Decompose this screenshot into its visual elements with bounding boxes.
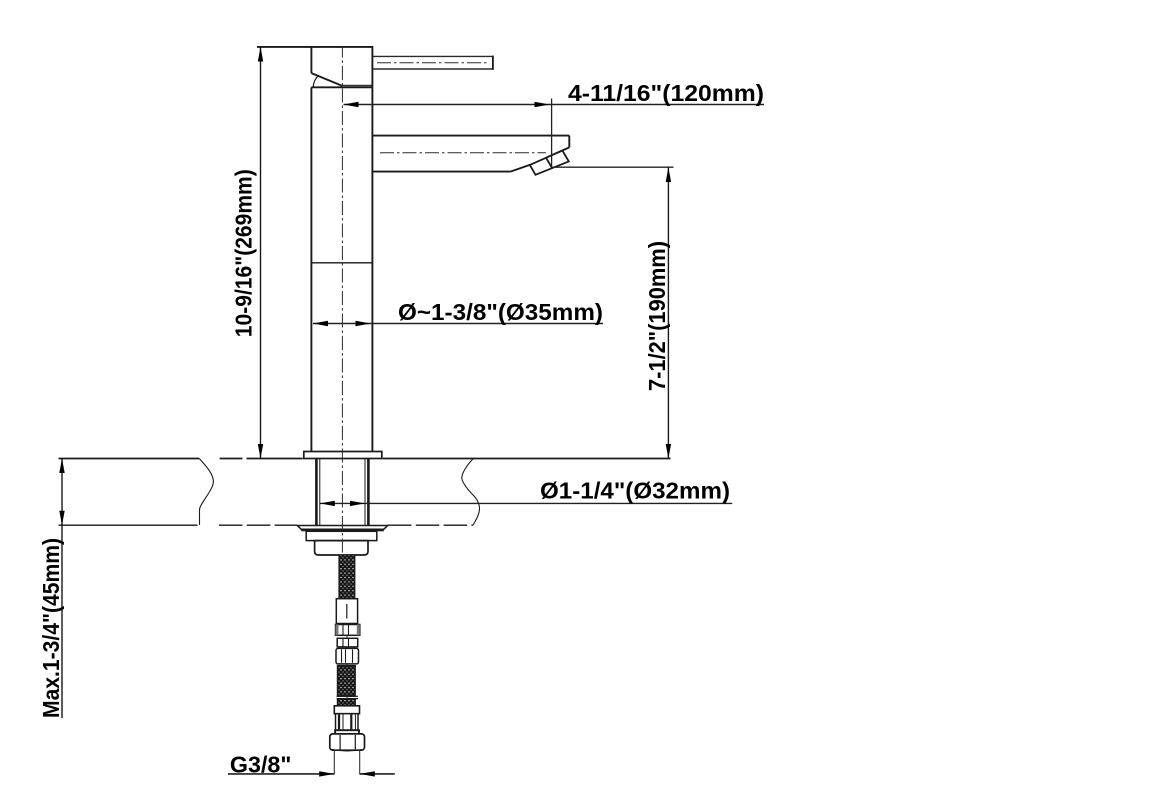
- svg-text:4-11/16"(120mm): 4-11/16"(120mm): [568, 80, 764, 106]
- svg-text:Ø~1-3/8"(Ø35mm): Ø~1-3/8"(Ø35mm): [398, 299, 603, 325]
- svg-text:Ø1-1/4"(Ø32mm): Ø1-1/4"(Ø32mm): [540, 478, 730, 504]
- svg-text:7-1/2"(190mm): 7-1/2"(190mm): [644, 241, 670, 391]
- svg-text:10-9/16"(269mm): 10-9/16"(269mm): [231, 169, 257, 337]
- svg-text:Max.1-3/4"(45mm): Max.1-3/4"(45mm): [38, 538, 64, 718]
- svg-text:G3/8": G3/8": [230, 751, 292, 777]
